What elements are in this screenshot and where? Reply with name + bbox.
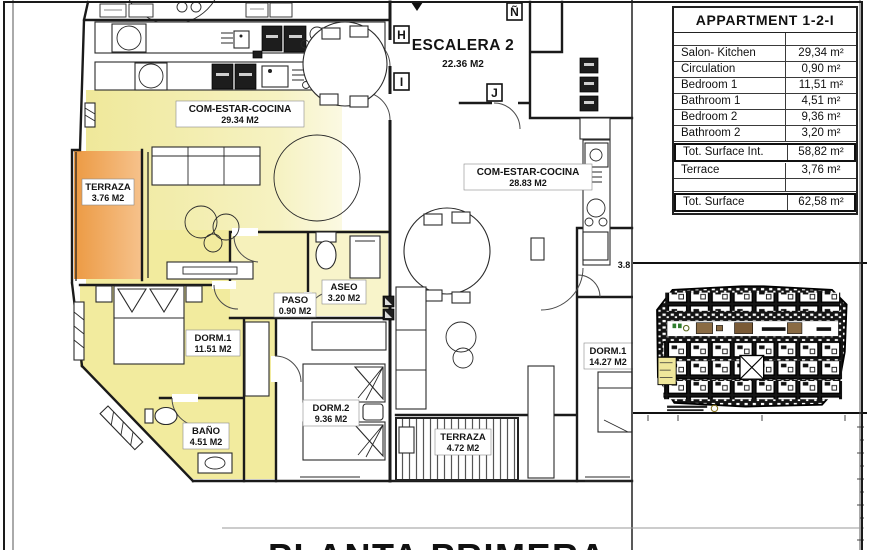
row-label: Tot. Surface Int. — [676, 145, 788, 160]
row-value: 9,36 m² — [786, 110, 856, 125]
table-spacer-row — [674, 33, 856, 46]
room-label: ASEO — [331, 282, 358, 293]
table-row: Bedroom 1 11,51 m² — [674, 78, 856, 94]
row-label: Tot. Surface — [676, 195, 788, 210]
row-value: 3,76 m² — [786, 163, 856, 178]
site-plan-thumbnail — [639, 268, 861, 412]
site-plan-band — [633, 262, 867, 414]
marker-i: I — [400, 75, 403, 89]
stairwell-area: 22.36 M2 — [442, 59, 484, 70]
room-area: 4.51 M2 — [190, 437, 223, 447]
room-label: DORM.1 — [195, 333, 233, 344]
room-area: 28.83 M2 — [509, 178, 547, 188]
row-value: 62,58 m² — [788, 195, 854, 210]
table-row: Bathroom 1 4,51 m² — [674, 94, 856, 110]
room-area: 3.20 M2 — [328, 293, 361, 303]
row-value: 3,20 m² — [786, 126, 856, 141]
row-value: 58,82 m² — [788, 145, 854, 160]
row-label: Terrace — [674, 163, 786, 178]
row-value: 29,34 m² — [786, 46, 856, 61]
room-area: 14.27 M2 — [589, 357, 627, 367]
table-spacer-row — [674, 179, 856, 192]
room-area: 9.36 M2 — [315, 414, 348, 424]
stairwell-name: ESCALERA 2 — [412, 37, 515, 54]
row-value: 4,51 m² — [786, 94, 856, 109]
marker-h: H — [397, 28, 406, 42]
room-label: COM-ESTAR-COCINA — [477, 167, 580, 178]
apartment-table-title: APPARTMENT 1-2-I — [674, 8, 856, 33]
row-label: Bathroom 1 — [674, 94, 786, 109]
row-label: Salon- Kitchen — [674, 46, 786, 61]
marker-n: Ñ — [510, 4, 519, 19]
table-row: Bathroom 2 3,20 m² — [674, 126, 856, 142]
row-label: Bedroom 2 — [674, 110, 786, 125]
row-value: 11,51 m² — [786, 78, 856, 93]
row-label: Circulation — [674, 62, 786, 77]
room-area: 29.34 M2 — [221, 115, 259, 125]
row-label: Bedroom 1 — [674, 78, 786, 93]
room-label: TERRAZA — [85, 182, 131, 193]
room-area: 3.76 M2 — [92, 193, 125, 203]
room-label: BAÑO — [192, 426, 220, 437]
table-row: Circulation 0,90 m² — [674, 62, 856, 78]
entrance-arrow-icon — [411, 2, 423, 11]
apartment-surface-table: APPARTMENT 1-2-I Salon- Kitchen 29,34 m²… — [672, 6, 858, 215]
row-value: 0,90 m² — [786, 62, 856, 77]
room-area: 0.90 M2 — [279, 306, 312, 316]
room-area: 11.51 M2 — [194, 344, 231, 354]
drawing-sheet: ESCALERA 2 22.36 M2 H I J Ñ COM-ESTAR-CO… — [0, 0, 870, 550]
room-label: TERRAZA — [440, 432, 486, 443]
total-interior-row: Tot. Surface Int. 58,82 m² — [674, 143, 856, 162]
sheet-title: PLANTA PRIMERA — [268, 536, 607, 550]
terrace-floor — [74, 151, 142, 279]
table-row: Salon- Kitchen 29,34 m² — [674, 46, 856, 62]
room-label: DORM.2 — [313, 403, 350, 414]
room-label: COM-ESTAR-COCINA — [189, 104, 292, 115]
room-label: PASO — [282, 295, 308, 306]
row-label: Bathroom 2 — [674, 126, 786, 141]
total-surface-row: Tot. Surface 62,58 m² — [674, 193, 856, 212]
room-label: DORM.1 — [590, 346, 628, 357]
stairwell-label: ESCALERA 2 22.36 M2 — [412, 37, 515, 70]
marker-j: J — [491, 86, 498, 100]
floor-plan: ESCALERA 2 22.36 M2 H I J Ñ COM-ESTAR-CO… — [0, 0, 635, 550]
terrace-row: Terrace 3,76 m² — [674, 163, 856, 179]
table-row: Bedroom 2 9,36 m² — [674, 110, 856, 126]
room-area: 4.72 M2 — [447, 443, 480, 453]
clipped-room-area: 3.8 — [618, 260, 631, 270]
